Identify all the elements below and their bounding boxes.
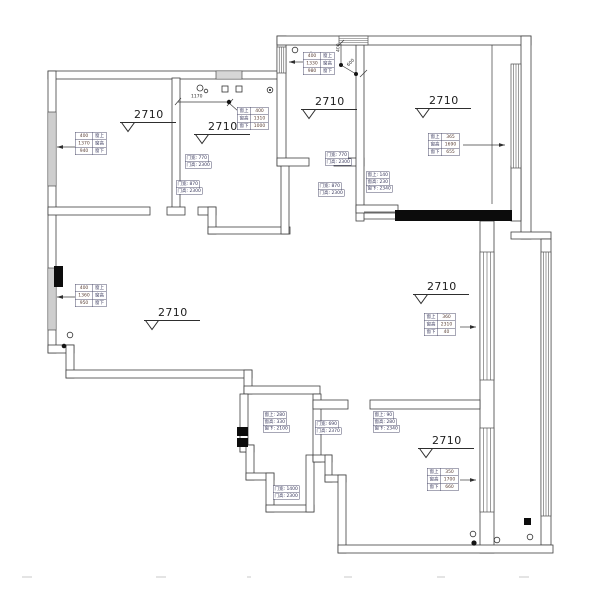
elevation-triangle-icon bbox=[414, 294, 429, 305]
callout-line: 门宽: 770 bbox=[325, 152, 349, 159]
dimension-value: 400 bbox=[75, 132, 93, 140]
window-dimension-table: 窗上350窗高1700窗下660 bbox=[427, 468, 459, 491]
callout-line: 窗下: 2340 bbox=[366, 185, 392, 192]
table-row: 1370窗高 bbox=[75, 140, 106, 148]
elevation-value: 2710 bbox=[432, 434, 462, 447]
dimension-label: 窗上 bbox=[93, 284, 107, 292]
dimension-label: 窗上 bbox=[237, 107, 251, 115]
callout-line: 门高: 2300 bbox=[273, 492, 299, 499]
opening-dimension-callout: 门宽: 1400门高: 2300 bbox=[273, 486, 299, 500]
dimension-label: 窗下 bbox=[321, 67, 335, 75]
dimension-value: 360 bbox=[438, 313, 456, 321]
opening-dimension-callout: 门宽: 870门高: 2300 bbox=[318, 183, 344, 197]
window-dimension-table: 窗上400窗高1310窗下1000 bbox=[237, 107, 269, 130]
dimension-label: 窗高 bbox=[237, 115, 251, 123]
dimension-label: 400 bbox=[336, 43, 341, 52]
dimension-value: 655 bbox=[442, 148, 460, 156]
callout-line: 窗上: 280 bbox=[263, 412, 287, 419]
callout-line: 窗高: 230 bbox=[366, 178, 390, 185]
elevation-triangle-icon bbox=[416, 108, 431, 119]
callout-line: 门高: 2300 bbox=[325, 158, 351, 165]
elevation-value: 2710 bbox=[158, 306, 188, 319]
dimension-label: 窗下 bbox=[424, 328, 438, 336]
dimension-value: 950 bbox=[75, 299, 93, 307]
dimension-value: 1690 bbox=[442, 141, 460, 149]
table-row: 窗下655 bbox=[428, 148, 459, 156]
callout-line: 窗下: 2100 bbox=[263, 425, 289, 432]
window-dimension-table: 窗上365窗高1690窗下655 bbox=[428, 133, 460, 156]
floor-plan-canvas: 2710271027102710271027102710400窗上1370窗高9… bbox=[0, 0, 600, 600]
elevation-value: 2710 bbox=[427, 280, 457, 293]
dimension-label: 窗下 bbox=[93, 147, 107, 155]
dimension-label: 窗高 bbox=[427, 476, 441, 484]
window-dimension-grid: 窗上360窗高2310窗下40 bbox=[424, 313, 456, 336]
window-dimension-grid: 400窗上1360窗高950窗下 bbox=[75, 284, 107, 307]
elevation-triangle-icon bbox=[145, 320, 160, 331]
dimension-value: 365 bbox=[442, 133, 460, 141]
dimension-value: 1000 bbox=[251, 122, 269, 130]
callout-line: 窗上: 140 bbox=[366, 172, 390, 179]
dimension-value: 40 bbox=[438, 328, 456, 336]
dimension-value: 1360 bbox=[75, 292, 93, 300]
elevation-marker: 2710 bbox=[120, 108, 176, 132]
elevation-marker: 2710 bbox=[415, 94, 471, 118]
table-row: 400窗上 bbox=[75, 132, 106, 140]
dimension-label: 窗高 bbox=[93, 140, 107, 148]
window-dimension-table: 400窗上1360窗高950窗下 bbox=[75, 284, 107, 307]
callout-line: 门高: 2300 bbox=[318, 189, 344, 196]
window-dimension-table: 窗上360窗高2310窗下40 bbox=[424, 313, 456, 336]
callout-line: 门高: 2300 bbox=[176, 187, 202, 194]
dimension-value: 1370 bbox=[75, 140, 93, 148]
opening-dimension-callout: 门宽: 770门高: 2300 bbox=[185, 155, 211, 169]
dimension-label: 窗下 bbox=[428, 148, 442, 156]
callout-line: 窗高: 280 bbox=[373, 418, 397, 425]
dimension-label: 窗高 bbox=[321, 60, 335, 68]
table-row: 窗高2310 bbox=[424, 321, 455, 329]
elevation-marker: 2710 bbox=[418, 434, 474, 458]
dimension-value: 660 bbox=[441, 483, 459, 491]
window-dimension-grid: 窗上365窗高1690窗下655 bbox=[428, 133, 460, 156]
elevation-marker: 2710 bbox=[144, 306, 200, 330]
dimension-label: 窗上 bbox=[427, 468, 441, 476]
dimension-label: 窗高 bbox=[424, 321, 438, 329]
table-row: 窗上350 bbox=[427, 468, 458, 476]
callout-line: 窗高: 330 bbox=[263, 418, 287, 425]
table-row: 窗下1000 bbox=[237, 122, 268, 130]
table-row: 窗下40 bbox=[424, 328, 455, 336]
table-row: 窗高1690 bbox=[428, 141, 459, 149]
table-row: 940窗下 bbox=[75, 147, 106, 155]
opening-dimension-callout: 门宽: 690门高: 2370 bbox=[315, 421, 341, 435]
window-dimension-grid: 窗上350窗高1700窗下660 bbox=[427, 468, 459, 491]
dimension-value: 940 bbox=[75, 147, 93, 155]
table-row: 窗上365 bbox=[428, 133, 459, 141]
elevation-triangle-icon bbox=[302, 109, 317, 120]
table-row: 1330窗高 bbox=[303, 60, 334, 68]
dimension-value: 400 bbox=[75, 284, 93, 292]
window-dimension-table: 400窗上1330窗高980窗下 bbox=[303, 52, 335, 75]
dimension-label: 1170 bbox=[191, 94, 202, 99]
dimension-label: 窗下 bbox=[427, 483, 441, 491]
callout-line: 门宽: 870 bbox=[318, 183, 342, 190]
table-row: 窗高1310 bbox=[237, 115, 268, 123]
dimension-value: 2310 bbox=[438, 321, 456, 329]
opening-dimension-callout: 窗上: 280窗高: 330窗下: 2100 bbox=[263, 412, 289, 432]
table-row: 1360窗高 bbox=[75, 292, 106, 300]
table-row: 窗上400 bbox=[237, 107, 268, 115]
callout-line: 门宽: 770 bbox=[185, 155, 209, 162]
dimension-value: 400 bbox=[251, 107, 269, 115]
dimension-label: 窗下 bbox=[93, 299, 107, 307]
elevation-value: 2710 bbox=[208, 120, 238, 133]
dimension-value: 1330 bbox=[303, 60, 321, 68]
callout-line: 窗下: 2340 bbox=[373, 425, 399, 432]
window-dimension-grid: 窗上400窗高1310窗下1000 bbox=[237, 107, 269, 130]
elevation-value: 2710 bbox=[429, 94, 459, 107]
dimension-value: 1700 bbox=[441, 476, 459, 484]
elevation-triangle-icon bbox=[419, 448, 434, 459]
annotation-overlay: 2710271027102710271027102710400窗上1370窗高9… bbox=[0, 0, 600, 600]
dimension-label: 600 bbox=[346, 58, 356, 68]
dimension-value: 1310 bbox=[251, 115, 269, 123]
dimension-label: 窗高 bbox=[93, 292, 107, 300]
table-row: 窗上360 bbox=[424, 313, 455, 321]
dimension-label: 窗上 bbox=[321, 52, 335, 60]
opening-dimension-callout: 窗上: 140窗高: 230窗下: 2340 bbox=[366, 172, 392, 192]
callout-line: 窗上: 90 bbox=[373, 412, 394, 419]
dimension-value: 980 bbox=[303, 67, 321, 75]
elevation-marker: 2710 bbox=[301, 95, 357, 119]
table-row: 950窗下 bbox=[75, 299, 106, 307]
callout-line: 门高: 2370 bbox=[315, 427, 341, 434]
elevation-value: 2710 bbox=[134, 108, 164, 121]
dimension-label: 窗上 bbox=[93, 132, 107, 140]
table-row: 400窗上 bbox=[303, 52, 334, 60]
callout-line: 门宽: 690 bbox=[315, 421, 339, 428]
callout-line: 门高: 2300 bbox=[185, 161, 211, 168]
opening-dimension-callout: 门宽: 770门高: 2300 bbox=[325, 152, 351, 166]
window-dimension-grid: 400窗上1330窗高980窗下 bbox=[303, 52, 335, 75]
callout-line: 门宽: 870 bbox=[176, 181, 200, 188]
dimension-value: 400 bbox=[303, 52, 321, 60]
dimension-label: 窗上 bbox=[424, 313, 438, 321]
dimension-label: 窗上 bbox=[428, 133, 442, 141]
elevation-triangle-icon bbox=[195, 134, 210, 145]
elevation-value: 2710 bbox=[315, 95, 345, 108]
dimension-value: 350 bbox=[441, 468, 459, 476]
window-dimension-table: 400窗上1370窗高940窗下 bbox=[75, 132, 107, 155]
opening-dimension-callout: 窗上: 90窗高: 280窗下: 2340 bbox=[373, 412, 399, 432]
window-dimension-grid: 400窗上1370窗高940窗下 bbox=[75, 132, 107, 155]
dimension-label: 窗下 bbox=[237, 122, 251, 130]
elevation-marker: 2710 bbox=[413, 280, 469, 304]
table-row: 窗高1700 bbox=[427, 476, 458, 484]
opening-dimension-callout: 门宽: 870门高: 2300 bbox=[176, 181, 202, 195]
table-row: 400窗上 bbox=[75, 284, 106, 292]
elevation-triangle-icon bbox=[121, 122, 136, 133]
dimension-label: 窗高 bbox=[428, 141, 442, 149]
table-row: 窗下660 bbox=[427, 483, 458, 491]
table-row: 980窗下 bbox=[303, 67, 334, 75]
callout-line: 门宽: 1400 bbox=[273, 486, 299, 493]
